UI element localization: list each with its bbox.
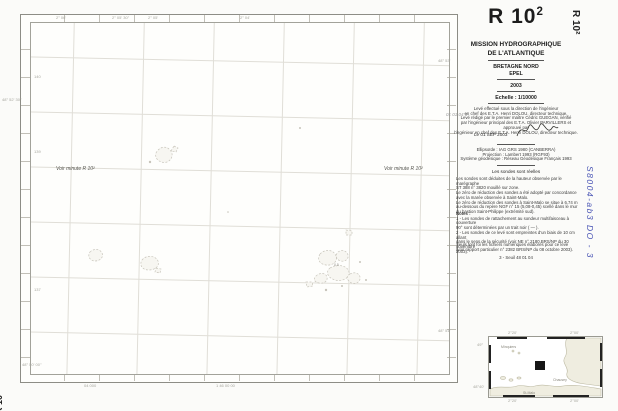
signature-icon bbox=[514, 119, 560, 141]
survey-area-marker bbox=[535, 361, 545, 370]
grid-label-left-1: 140 bbox=[34, 74, 41, 79]
region-label: BRETAGNE NORD bbox=[452, 64, 580, 70]
grid-label-top-3: 2° 05' bbox=[148, 15, 158, 20]
files-line: (voir rapport particulier n° 2382 BRS/NP… bbox=[456, 248, 580, 253]
divider bbox=[452, 165, 580, 166]
handwritten-archive-ref: S8004-ab3 DO - 3 bbox=[585, 166, 595, 259]
grid-label-top-1: 2° 06' bbox=[56, 15, 66, 20]
grid-label-bottom-1: 04 000 bbox=[84, 383, 96, 388]
grid-label-right-2: 48° 51' bbox=[438, 328, 450, 333]
soundings-statement: Les sondes sont déduites de la hauteur o… bbox=[456, 177, 580, 215]
org-name-line2: DE L'ATLANTIQUE bbox=[452, 50, 580, 57]
sheet-title-exponent: 2 bbox=[536, 6, 543, 18]
sheet-title-base: R 10 bbox=[488, 5, 536, 28]
inset-tick-bottom-left: 2°20' bbox=[508, 398, 517, 403]
location-inset-map: Minquiers Chausey St-Malo bbox=[488, 336, 603, 398]
grid-label-bottom-2: 1 46 00 00 bbox=[216, 383, 235, 388]
grid-label-right-1: 48° 53' bbox=[438, 58, 450, 63]
see-minute-note-right: Voir minute R 10² bbox=[384, 166, 423, 172]
inset-tick-left-top: 49° bbox=[477, 342, 483, 347]
soundings-header: Les sondes sont réelles bbox=[452, 169, 580, 174]
divider bbox=[452, 60, 580, 61]
see-minute-note-left: Voir minute R 10² bbox=[56, 166, 95, 172]
inset-tick-bottom-right: 2°00' bbox=[570, 398, 579, 403]
grid-label-top-2: 2° 05' 30'' bbox=[112, 15, 129, 20]
inset-label-chausey: Chausey bbox=[553, 378, 567, 382]
geodesy-block: Ellipsoïde : IAG GRS 1980 (CANBERRA) Pro… bbox=[452, 148, 580, 162]
inset-label-stmalo: St-Malo bbox=[523, 391, 535, 395]
zone-label: EPEL bbox=[452, 71, 580, 77]
map-sounding: 0,5 bbox=[334, 263, 339, 267]
grid-label-left-3: 139 bbox=[34, 149, 41, 154]
divider bbox=[452, 144, 580, 145]
files-statement: Seuls font foi les fichiers numériques é… bbox=[456, 243, 580, 252]
sheet-title: R 102 bbox=[452, 5, 580, 29]
inset-label-minquiers: Minquiers bbox=[501, 345, 516, 349]
geodesy-line: Système géodésique : Réseau Géodésique F… bbox=[452, 157, 580, 162]
survey-year: 2003 bbox=[452, 83, 580, 89]
sheet-ref-bottom-left: R 10² bbox=[0, 392, 4, 411]
scale-label: Echelle : 1/10000 bbox=[452, 95, 580, 101]
grid-label-left-2: 48° 52' 30'' bbox=[2, 97, 21, 102]
inset-tick-left-bottom: 48°40' bbox=[473, 384, 484, 389]
grid-label-left-4: 137 bbox=[34, 287, 41, 292]
divider bbox=[452, 103, 580, 104]
map-features: 0,5 bbox=[20, 14, 456, 381]
inset-tick-top-right: 2°00' bbox=[570, 330, 579, 335]
inset-map-graphic: Minquiers Chausey St-Malo bbox=[489, 337, 602, 397]
divider bbox=[452, 91, 580, 92]
survey-sheet: 0,5 Voir minute R 10² Voir minute R 10² … bbox=[0, 0, 618, 411]
grid-label-corner-bl: 48° 50' 00'' bbox=[22, 362, 41, 367]
footer-reference: 3 - Seuil 48 01 04 bbox=[452, 256, 580, 261]
org-name-line1: MISSION HYDROGRAPHIQUE bbox=[452, 41, 580, 48]
inset-tick-top-left: 2°20' bbox=[508, 330, 517, 335]
divider bbox=[452, 79, 580, 80]
grid-label-top-4: 2° 04' bbox=[240, 15, 250, 20]
